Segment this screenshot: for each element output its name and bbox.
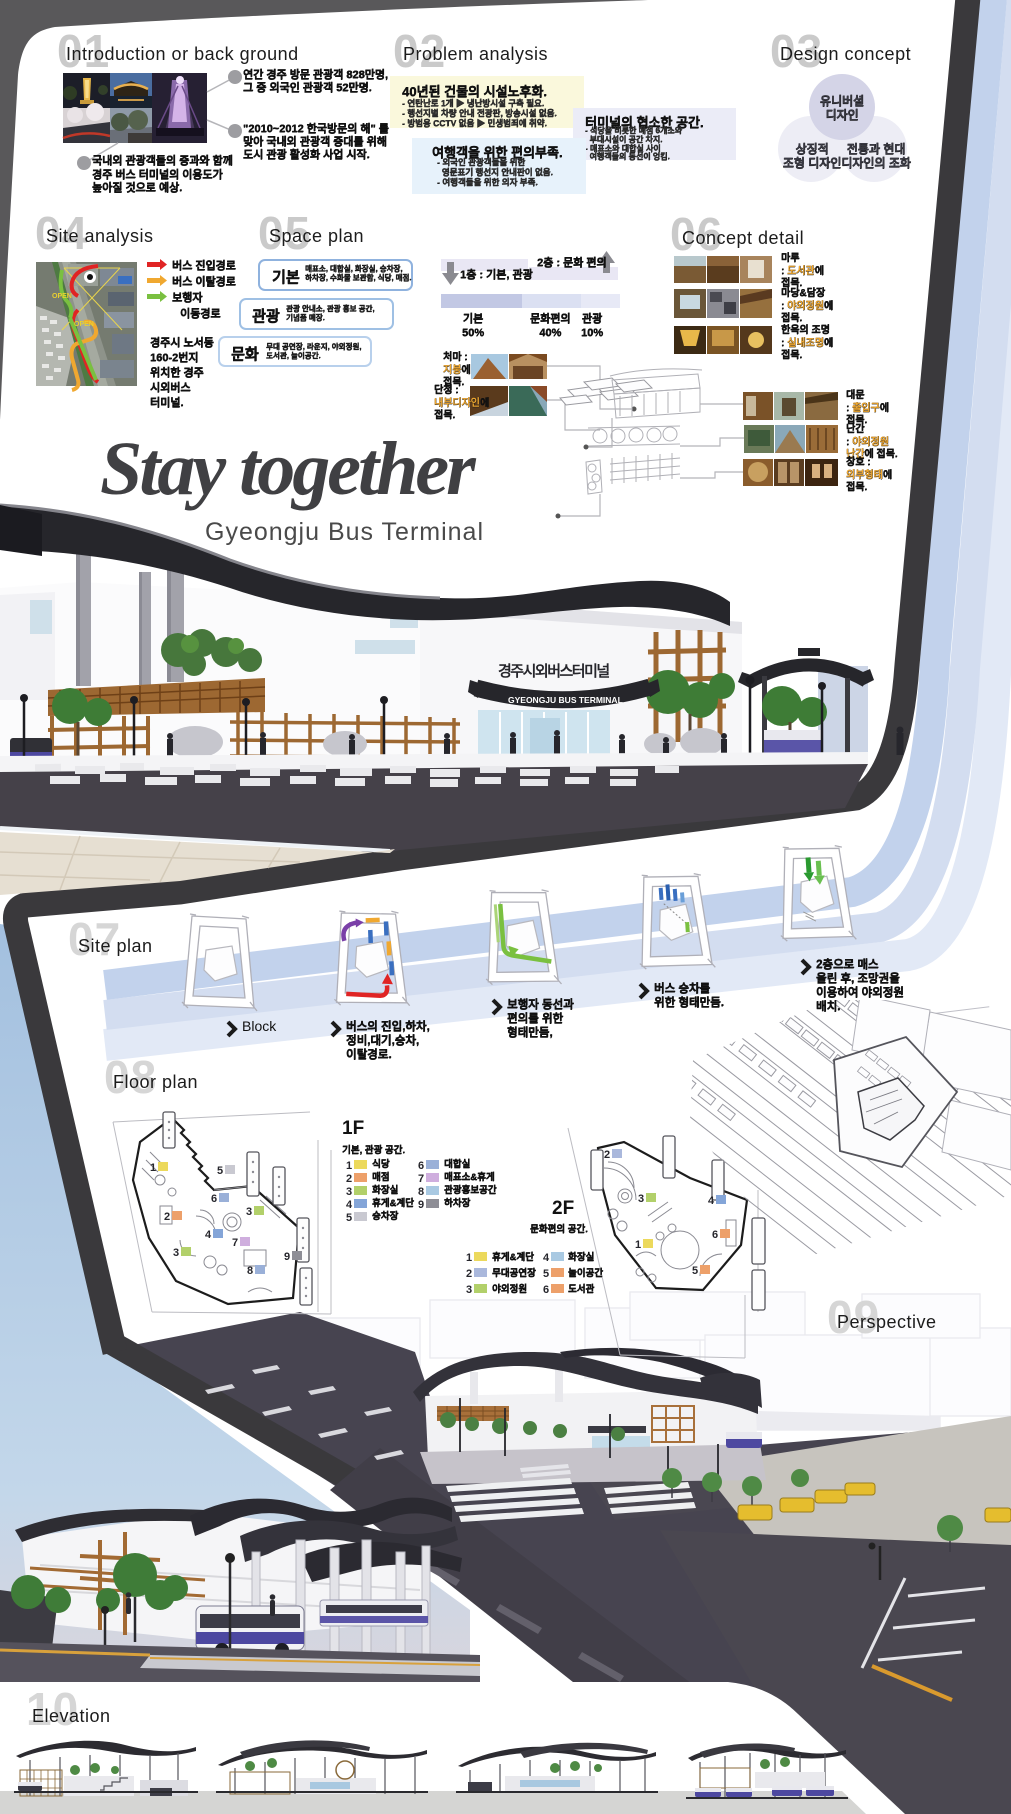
svg-text:경주시외버스터미널: 경주시외버스터미널 — [498, 662, 609, 680]
svg-text:1: 1 — [150, 1162, 156, 1174]
svg-text:2: 2 — [346, 1173, 352, 1185]
svg-text:5: 5 — [346, 1212, 352, 1224]
svg-text:8: 8 — [418, 1186, 424, 1198]
svg-text:9: 9 — [284, 1251, 290, 1263]
svg-text:3: 3 — [638, 1193, 644, 1205]
svg-text:4: 4 — [543, 1252, 550, 1264]
svg-text:5: 5 — [543, 1268, 549, 1280]
svg-text:9: 9 — [418, 1199, 424, 1211]
svg-text:2: 2 — [604, 1149, 610, 1161]
svg-text:6: 6 — [211, 1193, 217, 1205]
svg-text:1: 1 — [346, 1160, 352, 1172]
svg-text:OPEN: OPEN — [74, 321, 94, 328]
svg-text:6: 6 — [712, 1229, 718, 1241]
svg-text:7: 7 — [232, 1237, 238, 1249]
svg-text:6: 6 — [418, 1160, 424, 1172]
svg-text:3: 3 — [466, 1284, 472, 1296]
svg-text:5: 5 — [692, 1265, 698, 1277]
svg-text:4: 4 — [346, 1199, 353, 1211]
svg-text:1: 1 — [466, 1252, 472, 1264]
svg-text:5: 5 — [217, 1165, 223, 1177]
svg-text:2: 2 — [164, 1211, 170, 1223]
svg-text:3: 3 — [173, 1247, 179, 1259]
svg-text:3: 3 — [246, 1206, 252, 1218]
svg-text:8: 8 — [247, 1265, 253, 1277]
svg-text:1: 1 — [635, 1239, 641, 1251]
svg-text:4: 4 — [708, 1195, 715, 1207]
svg-text:GYEONGJU BUS TERMINAL: GYEONGJU BUS TERMINAL — [508, 695, 623, 705]
svg-text:3: 3 — [346, 1186, 352, 1198]
svg-text:7: 7 — [418, 1173, 424, 1185]
svg-text:OPEN: OPEN — [52, 293, 72, 300]
svg-text:6: 6 — [543, 1284, 549, 1296]
svg-text:2: 2 — [466, 1268, 472, 1280]
svg-text:4: 4 — [205, 1229, 212, 1241]
